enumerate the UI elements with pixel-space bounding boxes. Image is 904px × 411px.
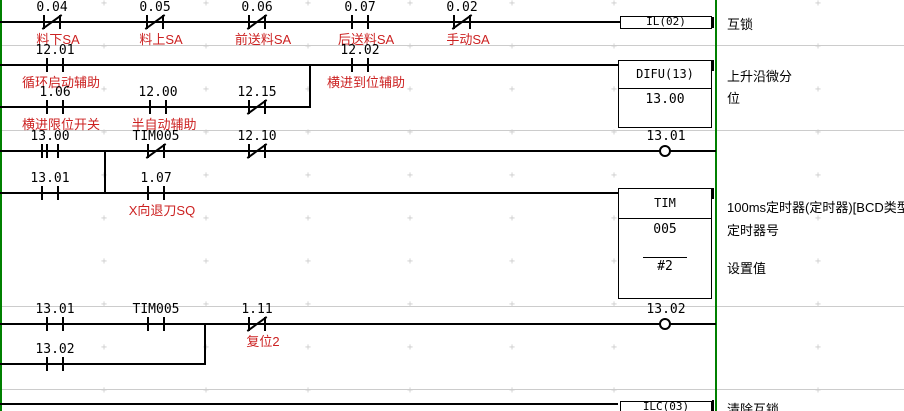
grid-marker: + xyxy=(305,0,311,9)
grid-marker: + xyxy=(305,127,311,138)
grid-marker: + xyxy=(815,342,821,353)
grid-marker: + xyxy=(509,84,515,95)
contact-comment: 复位2 xyxy=(246,331,279,350)
contact-address: 12.10 xyxy=(237,129,276,144)
grid-marker: + xyxy=(407,170,413,181)
wire-rung2-junction xyxy=(309,64,311,108)
contact-1-11[interactable]: 1.11 复位2 xyxy=(243,317,271,331)
contact-address: TIM005 xyxy=(133,129,180,144)
contact-tim005-no[interactable]: TIM005 xyxy=(142,317,170,331)
wire-rung1 xyxy=(0,21,620,23)
contact-address: 12.15 xyxy=(237,85,276,100)
contact-address: 13.00 xyxy=(30,129,69,144)
grid-marker: + xyxy=(305,385,311,396)
grid-marker: + xyxy=(101,299,107,310)
grid-marker: + xyxy=(305,170,311,181)
grid-marker: + xyxy=(101,41,107,52)
contact-12-02[interactable]: 12.02 横进到位辅助 xyxy=(346,58,374,72)
left-power-rail xyxy=(0,0,2,411)
grid-marker: + xyxy=(203,385,209,396)
grid-marker: + xyxy=(611,127,617,138)
grid-marker: + xyxy=(101,0,107,9)
contact-comment: 横进到位辅助 xyxy=(327,72,405,91)
right-power-rail xyxy=(715,0,717,411)
grid-marker: + xyxy=(203,84,209,95)
block-operand: 13.00 xyxy=(619,92,711,107)
function-block-tim[interactable]: TIM 005 #2 xyxy=(618,188,712,299)
contact-12-10[interactable]: 12.10 xyxy=(243,144,271,158)
grid-marker: + xyxy=(611,0,617,9)
grid-marker: + xyxy=(815,256,821,267)
block-title: TIM xyxy=(619,189,711,219)
contact-address: TIM005 xyxy=(133,302,180,317)
contact-address: 12.00 xyxy=(138,85,177,100)
rung-annotation: 定时器号 xyxy=(727,220,779,239)
contact-0-06[interactable]: 0.06 前送料SA xyxy=(243,15,271,29)
rung-annotation: 互锁 xyxy=(727,14,753,33)
grid-marker: + xyxy=(203,0,209,9)
rung-annotation: 位 xyxy=(727,88,740,107)
function-block-difu[interactable]: DIFU(13) 13.00 xyxy=(618,60,712,128)
contact-13-01[interactable]: 13.01 xyxy=(36,186,64,200)
grid-marker: + xyxy=(305,213,311,224)
grid-marker: + xyxy=(101,213,107,224)
timer-number: 005 xyxy=(619,222,711,237)
grid-marker: + xyxy=(509,41,515,52)
grid-marker: + xyxy=(101,256,107,267)
grid-marker: + xyxy=(407,213,413,224)
grid-marker: + xyxy=(203,170,209,181)
instruction-box-il[interactable]: IL(02) xyxy=(620,16,712,29)
instruction-box-ilc[interactable]: ILC(03) xyxy=(620,401,712,411)
grid-marker: + xyxy=(407,84,413,95)
grid-marker: + xyxy=(611,299,617,310)
grid-marker: + xyxy=(203,41,209,52)
grid-marker: + xyxy=(305,256,311,267)
grid-marker: + xyxy=(509,170,515,181)
coil-13-02[interactable]: 13.02 xyxy=(652,317,680,331)
contact-1-07[interactable]: 1.07 X向退刀SQ xyxy=(142,186,170,200)
contact-tim005-nc[interactable]: TIM005 xyxy=(142,144,170,158)
contact-address: 0.06 xyxy=(241,0,272,15)
grid-marker: + xyxy=(509,342,515,353)
block-title: DIFU(13) xyxy=(619,61,711,89)
contact-comment: X向退刀SQ xyxy=(129,200,195,219)
rail-connector-tick xyxy=(712,60,714,71)
grid-marker: + xyxy=(509,127,515,138)
grid-marker: + xyxy=(509,213,515,224)
contact-comment: 手动SA xyxy=(446,29,489,48)
coil-address: 13.01 xyxy=(646,129,685,144)
rung-annotation: 上升沿微分 xyxy=(727,66,792,85)
wire-rung5 xyxy=(0,403,618,405)
grid-marker: + xyxy=(407,256,413,267)
coil-symbol xyxy=(659,318,671,330)
grid-marker: + xyxy=(815,84,821,95)
grid-marker: + xyxy=(203,127,209,138)
rail-connector-tick xyxy=(712,400,714,411)
grid-marker: + xyxy=(101,385,107,396)
grid-marker: + xyxy=(203,213,209,224)
wire-rung3-junction xyxy=(104,150,106,194)
wire-rung4-main xyxy=(0,323,716,325)
grid-marker: + xyxy=(407,127,413,138)
grid-marker: + xyxy=(611,342,617,353)
grid-marker: + xyxy=(815,299,821,310)
grid-marker: + xyxy=(815,41,821,52)
instruction-label: ILC(03) xyxy=(643,400,689,411)
coil-symbol xyxy=(659,145,671,157)
contact-0-04[interactable]: 0.04 料下SA xyxy=(38,15,66,29)
grid-marker: + xyxy=(509,299,515,310)
wire-rung4-branch xyxy=(0,363,206,365)
grid-marker: + xyxy=(407,299,413,310)
contact-address: 0.05 xyxy=(139,0,170,15)
contact-12-15[interactable]: 12.15 xyxy=(243,100,271,114)
grid-marker: + xyxy=(611,84,617,95)
grid-marker: + xyxy=(101,84,107,95)
grid-marker: + xyxy=(203,299,209,310)
grid-marker: + xyxy=(407,41,413,52)
contact-address: 12.01 xyxy=(35,43,74,58)
contact-0-07[interactable]: 0.07 后送料SA xyxy=(346,15,374,29)
grid-marker: + xyxy=(407,385,413,396)
rung-annotation: 设置值 xyxy=(727,258,766,277)
rung-annotation: 清除互锁 xyxy=(727,399,779,411)
grid-marker: + xyxy=(203,256,209,267)
coil-13-01[interactable]: 13.01 xyxy=(652,144,680,158)
timer-set-value: #2 xyxy=(619,255,711,274)
grid-marker: + xyxy=(611,41,617,52)
grid-marker: + xyxy=(815,0,821,9)
contact-address: 1.06 xyxy=(39,85,70,100)
contact-12-00[interactable]: 12.00 半自动辅助 xyxy=(144,100,172,114)
grid-marker: + xyxy=(509,256,515,267)
rung-separator xyxy=(0,389,904,390)
ladder-diagram-view: 0.04 料下SA 0.05 料上SA 0.06 前送料SA 0.07 后送料S… xyxy=(0,0,904,411)
grid-marker: + xyxy=(101,127,107,138)
grid-marker: + xyxy=(815,385,821,396)
contact-address: 0.04 xyxy=(36,0,67,15)
rung-annotation: 100ms定时器(定时器)[BCD类型] xyxy=(727,197,904,216)
contact-13-02[interactable]: 13.02 xyxy=(41,357,69,371)
grid-marker: + xyxy=(305,342,311,353)
grid-marker: + xyxy=(305,299,311,310)
contact-address: 13.02 xyxy=(35,342,74,357)
contact-0-05[interactable]: 0.05 料上SA xyxy=(141,15,169,29)
grid-marker: + xyxy=(509,385,515,396)
grid-marker: + xyxy=(815,127,821,138)
grid-marker: + xyxy=(509,0,515,9)
contact-1-06[interactable]: 1.06 横进限位开关 xyxy=(41,100,69,114)
grid-marker: + xyxy=(101,342,107,353)
grid-marker: + xyxy=(611,256,617,267)
rail-connector-tick xyxy=(712,188,714,199)
grid-marker: + xyxy=(815,170,821,181)
contact-0-02[interactable]: 0.02 手动SA xyxy=(448,15,476,29)
contact-13-00[interactable]: 13.00 xyxy=(36,144,64,158)
contact-13-01-b[interactable]: 13.01 xyxy=(41,317,69,331)
rail-connector-tick xyxy=(712,17,714,28)
contact-12-01[interactable]: 12.01 循环启动辅助 xyxy=(41,58,69,72)
coil-address: 13.02 xyxy=(646,302,685,317)
grid-marker: + xyxy=(407,342,413,353)
grid-marker: + xyxy=(611,385,617,396)
grid-marker: + xyxy=(611,170,617,181)
wire-rung4-junction xyxy=(204,323,206,365)
grid-marker: + xyxy=(611,213,617,224)
wire-rung3-main xyxy=(0,150,716,152)
wire-rung3-branch xyxy=(0,192,618,194)
contact-address: 1.07 xyxy=(140,171,171,186)
contact-address: 0.07 xyxy=(344,0,375,15)
grid-marker: + xyxy=(407,0,413,9)
contact-address: 0.02 xyxy=(446,0,477,15)
contact-comment: 前送料SA xyxy=(235,29,291,48)
contact-address: 13.01 xyxy=(35,302,74,317)
instruction-label: IL(02) xyxy=(646,15,686,28)
grid-marker: + xyxy=(305,41,311,52)
contact-comment: 料上SA xyxy=(139,29,182,48)
contact-address: 12.02 xyxy=(340,43,379,58)
contact-address: 1.11 xyxy=(241,302,272,317)
contact-address: 13.01 xyxy=(30,171,69,186)
